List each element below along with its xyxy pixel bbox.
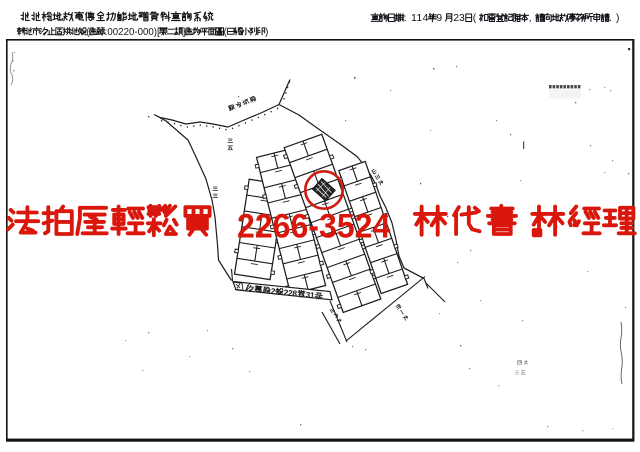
svg-text:): ) xyxy=(616,13,619,24)
svg-text:2: 2 xyxy=(270,286,276,296)
svg-text:23: 23 xyxy=(453,13,465,24)
svg-text:(: ( xyxy=(473,13,477,24)
svg-text::: : xyxy=(404,13,407,24)
svg-text:114: 114 xyxy=(411,13,428,24)
svg-text:,: , xyxy=(529,13,532,24)
svg-text:9: 9 xyxy=(436,13,442,24)
svg-text:2266-3524: 2266-3524 xyxy=(237,207,390,245)
svg-text:): ) xyxy=(265,27,268,38)
svg-text:]: ] xyxy=(183,27,186,38)
svg-text:31: 31 xyxy=(305,289,315,300)
svg-text:.: . xyxy=(609,13,612,24)
svg-text::00220-000)[: :00220-000)[ xyxy=(105,27,160,38)
svg-text:228: 228 xyxy=(283,287,298,298)
